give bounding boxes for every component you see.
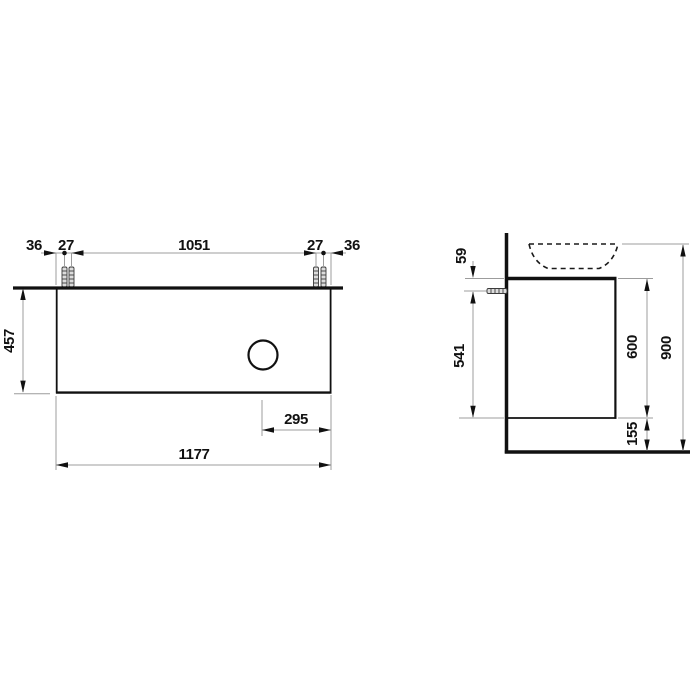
- fixing-screws-front: [62, 267, 326, 287]
- dim-label-1051: 1051: [178, 237, 210, 254]
- dim-label-36-left: 36: [26, 237, 42, 254]
- washbasin-outline: [529, 244, 618, 269]
- screw-icon: [321, 267, 326, 287]
- dim-label-27-right: 27: [307, 237, 323, 254]
- dim-59: 59: [453, 248, 504, 278]
- side-view: 59 541 600 155: [451, 233, 690, 454]
- dim-label-295: 295: [284, 411, 308, 428]
- arrow-right-36: [331, 250, 343, 255]
- fixing-screw-side: [464, 289, 507, 294]
- dim-label-900: 900: [658, 336, 675, 360]
- drain-hole-circle: [249, 341, 278, 370]
- cabinet-body-front: [56, 290, 332, 394]
- arrow-left-36: [44, 250, 56, 255]
- dim-label-600: 600: [624, 335, 641, 359]
- dim-label-457: 457: [1, 329, 18, 353]
- screw-icon: [62, 267, 67, 287]
- dim-label-59: 59: [453, 248, 470, 264]
- dim-155: 155: [624, 419, 650, 452]
- drawing-svg: 36 27 1051 27 36: [0, 0, 700, 700]
- cabinet-body-side: [506, 277, 617, 419]
- dim-label-1177: 1177: [179, 446, 210, 463]
- dim-label-27-left: 27: [58, 237, 74, 254]
- dim-295: 295: [262, 395, 331, 470]
- dim-541: 541: [451, 292, 504, 419]
- screw-icon: [487, 289, 507, 294]
- front-view: 36 27 1051 27 36: [1, 237, 360, 470]
- dim-1177: 1177: [56, 396, 331, 470]
- technical-drawing-canvas: 36 27 1051 27 36: [0, 0, 700, 700]
- screw-icon: [314, 267, 319, 287]
- dim-label-541: 541: [451, 344, 468, 368]
- dim-label-36-right: 36: [344, 237, 360, 254]
- dim-label-155: 155: [624, 422, 641, 446]
- screw-icon: [69, 267, 74, 287]
- dim-457: 457: [1, 288, 50, 394]
- dim-600: 600: [618, 279, 653, 419]
